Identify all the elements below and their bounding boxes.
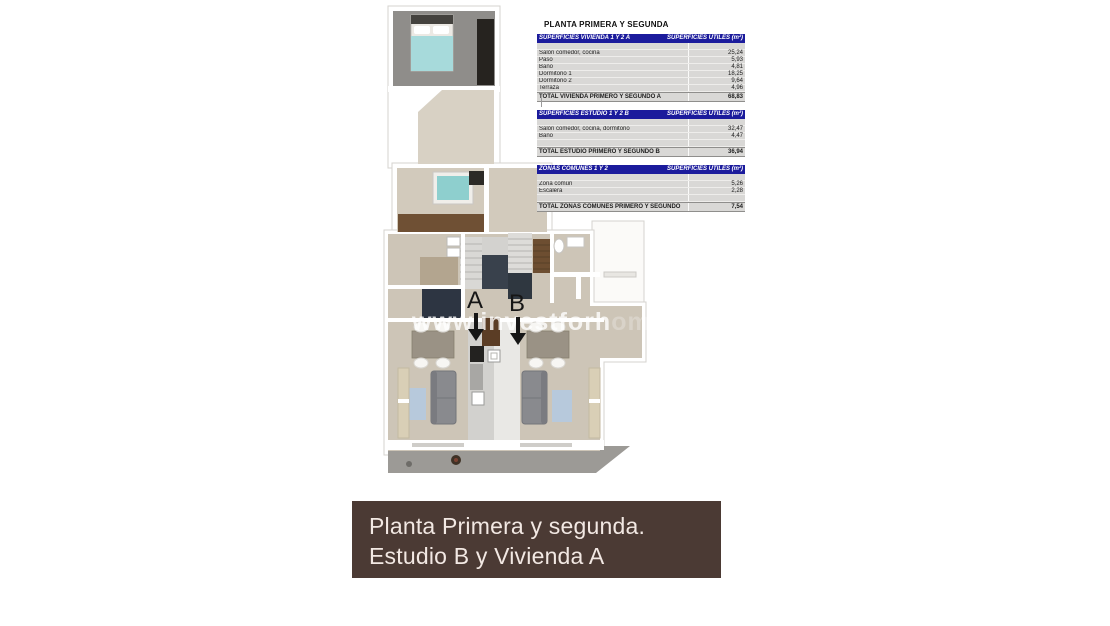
- unit-a-label: A: [467, 287, 483, 314]
- page: www.investforhom A B PLANTA PRIMERA Y SE…: [0, 0, 1110, 626]
- wood-stair: [533, 239, 550, 273]
- table-body: Salón comedor, cocina25,24Paso5,93Baño4,…: [537, 43, 745, 92]
- table-row: [537, 140, 745, 147]
- shelf: [567, 237, 584, 247]
- surface-table-vivienda: SUPERFICIES VIVIENDA 1 Y 2 A SUPERFICIES…: [537, 34, 745, 102]
- toilet: [554, 239, 564, 253]
- sofa-a: [431, 371, 456, 424]
- wood-floor-strip: [398, 214, 484, 232]
- balcony-door-b: [589, 368, 600, 438]
- table-total: TOTAL ESTUDIO PRIMERO Y SEGUNDO B 36,94: [537, 147, 745, 157]
- surface-table-estudio: SUPERFICIES ESTUDIO 1 Y 2 B SUPERFICIES …: [537, 110, 745, 157]
- table-total: TOTAL ZONAS COMUNES PRIMERO Y SEGUNDO 7,…: [537, 202, 745, 212]
- table-header: ZONAS COMUNES 1 Y 2 SUPERFICIES UTILES (…: [537, 165, 745, 174]
- table-row: Baño4,47: [537, 133, 745, 140]
- table-row: Salón comedor, cocina, dormitorio32,47: [537, 126, 745, 133]
- connector-tick: [541, 98, 542, 107]
- table-row: Dormitorio 29,64: [537, 78, 745, 85]
- terrace-item: [406, 461, 412, 467]
- table-row: Paso5,93: [537, 57, 745, 64]
- caption-bar: Planta Primera y segunda. Estudio B y Vi…: [352, 501, 721, 578]
- table-header: SUPERFICIES VIVIENDA 1 Y 2 A SUPERFICIES…: [537, 34, 745, 43]
- table-row: [537, 43, 745, 50]
- dark-fixture: [469, 171, 484, 185]
- table-header: SUPERFICIES ESTUDIO 1 Y 2 B SUPERFICIES …: [537, 110, 745, 119]
- table-row: Escalera2,28: [537, 188, 745, 195]
- sofa-b: [522, 371, 547, 424]
- unit-b-label: B: [509, 290, 525, 317]
- table-row: [537, 119, 745, 126]
- watermark: www.investforhom: [411, 308, 651, 336]
- bathtub: [433, 172, 473, 204]
- wardrobe: [477, 19, 494, 85]
- bathroom-wing: [397, 168, 547, 232]
- bed: [411, 15, 453, 71]
- table-row: Baño4,81: [537, 64, 745, 71]
- surface-tables: PLANTA PRIMERA Y SEGUNDA SUPERFICIES VIV…: [537, 20, 745, 220]
- tan-room: [420, 257, 458, 286]
- table-row: [537, 195, 745, 202]
- table-body: Zona común5,26Escalera2,28: [537, 174, 745, 202]
- caption-line1: Planta Primera y segunda.: [369, 511, 721, 541]
- table-row: Dormitorio 118,25: [537, 71, 745, 78]
- tables-title: PLANTA PRIMERA Y SEGUNDA: [544, 20, 745, 29]
- surface-table-zonas-comunes: ZONAS COMUNES 1 Y 2 SUPERFICIES UTILES (…: [537, 165, 745, 212]
- rug-b: [552, 390, 572, 422]
- caption-line2: Estudio B y Vivienda A: [369, 541, 721, 571]
- facade-wall: [388, 440, 604, 450]
- table-row: Salón comedor, cocina25,24: [537, 50, 745, 57]
- balcony-door-a: [398, 368, 409, 438]
- table-row: [537, 174, 745, 181]
- table-row: Terraza4,96: [537, 85, 745, 92]
- table-total: TOTAL VIVIENDA PRIMERO Y SEGUNDO A 68,83: [537, 92, 745, 102]
- table-row: Zona común5,26: [537, 181, 745, 188]
- table-body: Salón comedor, cocina, dormitorio32,47Ba…: [537, 119, 745, 147]
